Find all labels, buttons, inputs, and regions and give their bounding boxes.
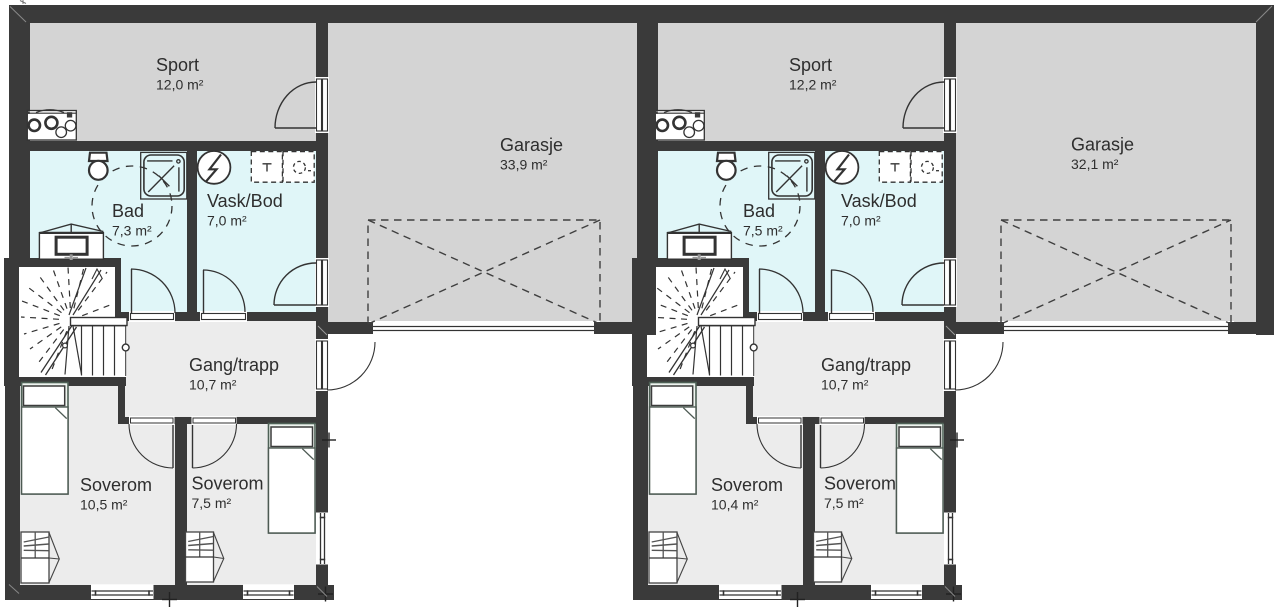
svg-text:Soverom: Soverom bbox=[824, 474, 896, 494]
svg-text:7,3 m²: 7,3 m² bbox=[112, 223, 152, 239]
svg-text:Gang/trapp: Gang/trapp bbox=[821, 355, 911, 375]
svg-text:Vask/Bod: Vask/Bod bbox=[207, 191, 283, 211]
svg-text:12,0 m²: 12,0 m² bbox=[156, 77, 204, 93]
svg-text:Sport: Sport bbox=[789, 55, 832, 75]
svg-text:Sport: Sport bbox=[156, 55, 199, 75]
svg-text:10,7 m²: 10,7 m² bbox=[821, 377, 869, 393]
svg-text:Vask/Bod: Vask/Bod bbox=[841, 191, 917, 211]
svg-text:32,1 m²: 32,1 m² bbox=[1071, 156, 1119, 172]
svg-text:10,5 m²: 10,5 m² bbox=[80, 497, 128, 513]
svg-text:7,5 m²: 7,5 m² bbox=[824, 495, 864, 511]
svg-text:Soverom: Soverom bbox=[711, 475, 783, 495]
svg-text:10,4 m²: 10,4 m² bbox=[711, 497, 759, 513]
svg-text:7,0 m²: 7,0 m² bbox=[841, 213, 881, 229]
svg-text:Bad: Bad bbox=[743, 201, 775, 221]
svg-text:33,9 m²: 33,9 m² bbox=[500, 157, 548, 173]
svg-text:7,5 m²: 7,5 m² bbox=[743, 223, 783, 239]
svg-text:10,7 m²: 10,7 m² bbox=[189, 377, 237, 393]
svg-text:Gang/trapp: Gang/trapp bbox=[189, 355, 279, 375]
svg-text:7,5 m²: 7,5 m² bbox=[192, 495, 232, 511]
svg-text:7,0 m²: 7,0 m² bbox=[207, 213, 247, 229]
svg-text:Bad: Bad bbox=[112, 201, 144, 221]
svg-text:Garasje: Garasje bbox=[500, 135, 563, 155]
svg-text:12,2 m²: 12,2 m² bbox=[789, 77, 837, 93]
svg-text:Garasje: Garasje bbox=[1071, 135, 1134, 155]
svg-text:Soverom: Soverom bbox=[80, 475, 152, 495]
svg-text:Soverom: Soverom bbox=[192, 474, 264, 494]
